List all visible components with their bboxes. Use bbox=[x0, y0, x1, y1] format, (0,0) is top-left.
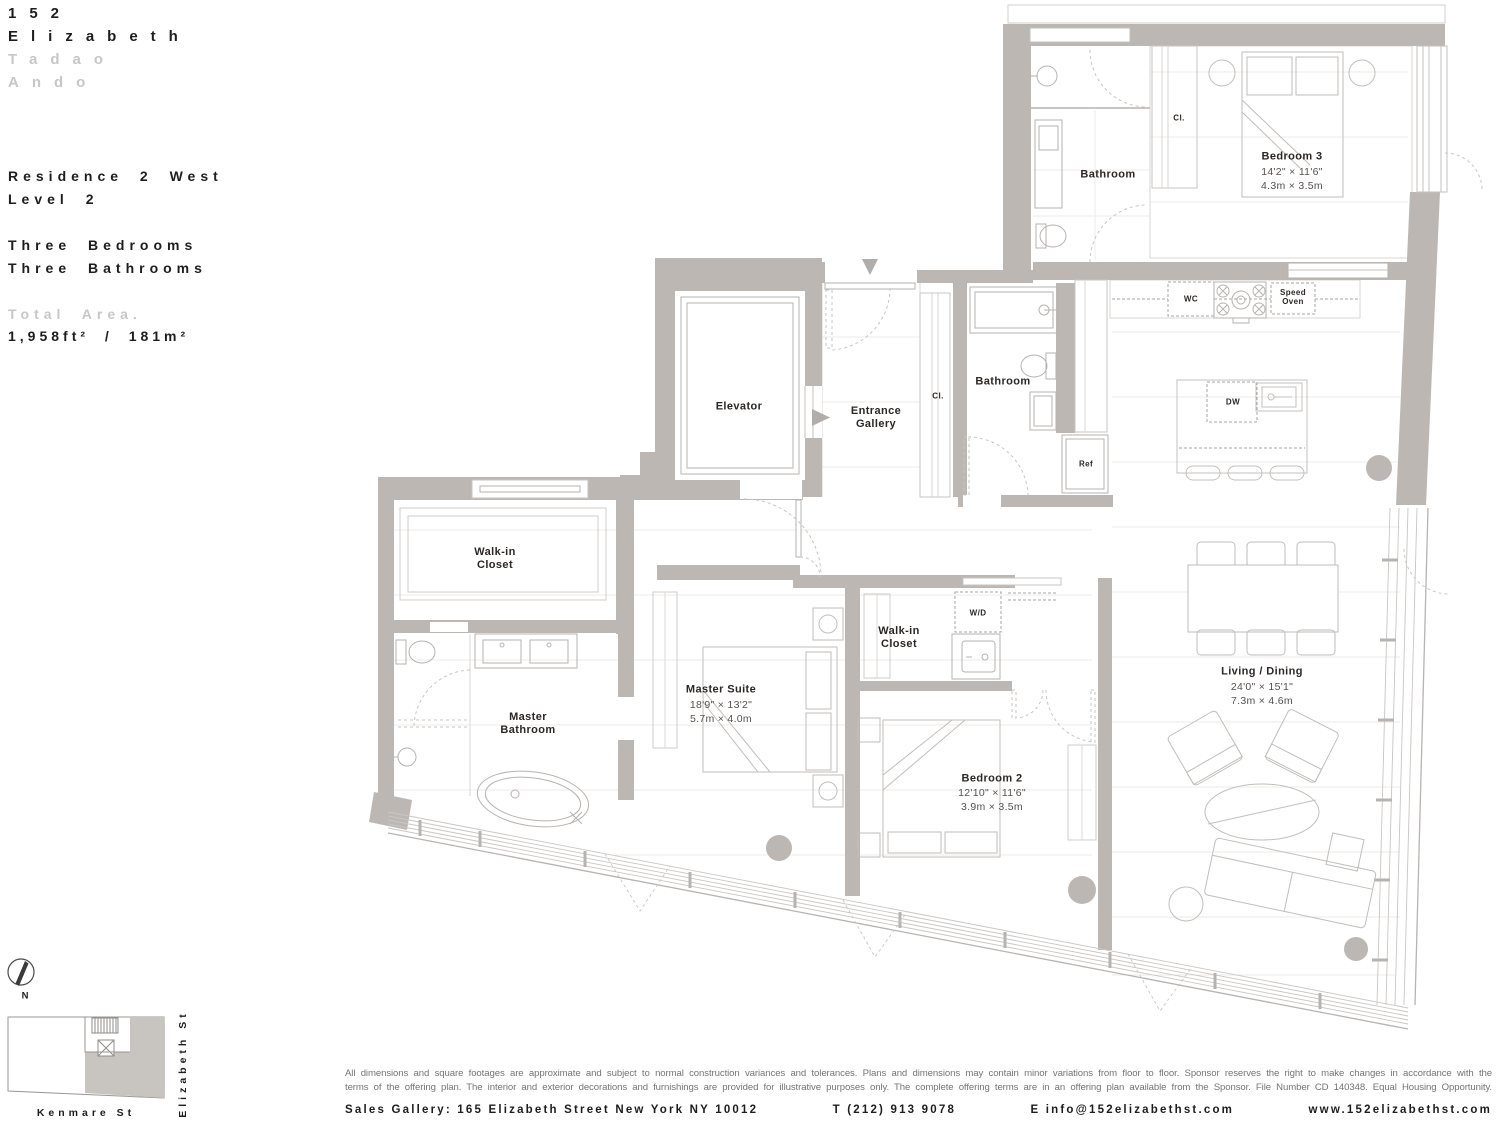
room-label-master-bathroom: Master Bathroom bbox=[482, 711, 574, 737]
sales-website: www.152elizabethst.com bbox=[1309, 1104, 1492, 1116]
room-dims-master-suite-metric: 5.7m × 4.0m bbox=[690, 713, 752, 725]
sales-gallery-line: Sales Gallery: 165 Elizabeth Street New … bbox=[345, 1104, 1492, 1116]
room-dims-master-suite-imperial: 18'9" × 13'2" bbox=[690, 699, 752, 711]
brand-address-number: 152 bbox=[8, 5, 72, 22]
room-dims-living-imperial: 24'0" × 15'1" bbox=[1231, 681, 1293, 693]
brand-architect-first: Tadao bbox=[8, 51, 116, 68]
appliance-label-speed-oven: Speed Oven bbox=[1268, 288, 1318, 306]
street-label-kenmare: Kenmare St bbox=[37, 1107, 135, 1119]
room-dims-bedroom2-metric: 3.9m × 3.5m bbox=[961, 801, 1023, 813]
appliance-label-ref: Ref bbox=[1079, 460, 1093, 469]
appliance-label-dw: DW bbox=[1226, 398, 1240, 407]
residence-level: Level 2 bbox=[8, 191, 98, 207]
sales-phone: T (212) 913 9078 bbox=[833, 1104, 956, 1116]
room-label-closet-top: Cl. bbox=[1173, 114, 1184, 123]
total-area-label: Total Area. bbox=[8, 306, 142, 322]
residence-bathrooms: Three Bathrooms bbox=[8, 260, 207, 276]
residence-name: Residence 2 West bbox=[8, 168, 223, 184]
room-label-walkin-master: Walk-in Closet bbox=[459, 546, 531, 572]
room-label-master-suite: Master Suite bbox=[686, 684, 756, 697]
room-dims-living-metric: 7.3m × 4.6m bbox=[1231, 695, 1293, 707]
total-area-value: 1,958ft² / 181m² bbox=[8, 328, 189, 344]
appliance-label-wc: WC bbox=[1184, 295, 1198, 304]
window-band-south bbox=[388, 812, 1408, 1029]
room-label-bathroom-mid: Bathroom bbox=[975, 376, 1030, 389]
residence-bedrooms: Three Bedrooms bbox=[8, 237, 197, 253]
sales-email: E info@152elizabethst.com bbox=[1030, 1104, 1234, 1116]
window-band-east bbox=[1372, 508, 1449, 1005]
room-dims-bedroom3-metric: 4.3m × 3.5m bbox=[1261, 180, 1323, 192]
street-label-elizabeth: Elizabeth St bbox=[177, 1010, 189, 1118]
brand-address-name: Elizabeth bbox=[8, 28, 191, 45]
site-plan bbox=[8, 1017, 164, 1098]
sales-address: Sales Gallery: 165 Elizabeth Street New … bbox=[345, 1104, 758, 1116]
floor-plan-page: 152 Elizabeth Tadao Ando Residence 2 Wes… bbox=[0, 0, 1500, 1127]
fixtures-bathroom-top bbox=[1028, 46, 1197, 248]
brand-architect-last: Ando bbox=[8, 74, 98, 91]
room-label-bedroom2: Bedroom 2 bbox=[961, 773, 1022, 786]
disclaimer-line2: terms of the offering plan. The interior… bbox=[345, 1082, 1492, 1093]
room-dims-bedroom3-imperial: 14'2" × 11'6" bbox=[1261, 166, 1323, 178]
room-dims-bedroom2-imperial: 12'10" × 11'6" bbox=[958, 787, 1026, 799]
room-label-entrance-gallery: Entrance Gallery bbox=[831, 405, 921, 431]
furniture-living-dining bbox=[1167, 542, 1377, 928]
room-label-bathroom-top: Bathroom bbox=[1080, 169, 1135, 182]
room-label-elevator: Elevator bbox=[716, 401, 763, 414]
disclaimer-line1: All dimensions and square footages are a… bbox=[345, 1068, 1492, 1079]
appliance-label-wd: W/D bbox=[970, 609, 987, 618]
room-label-living-dining: Living / Dining bbox=[1221, 666, 1303, 679]
north-label: N bbox=[22, 991, 29, 1002]
compass-icon bbox=[8, 959, 34, 986]
room-label-closet-entry: Cl. bbox=[932, 392, 943, 401]
room-label-bedroom3: Bedroom 3 bbox=[1261, 151, 1322, 164]
room-label-walkin2: Walk-in Closet bbox=[863, 625, 935, 651]
